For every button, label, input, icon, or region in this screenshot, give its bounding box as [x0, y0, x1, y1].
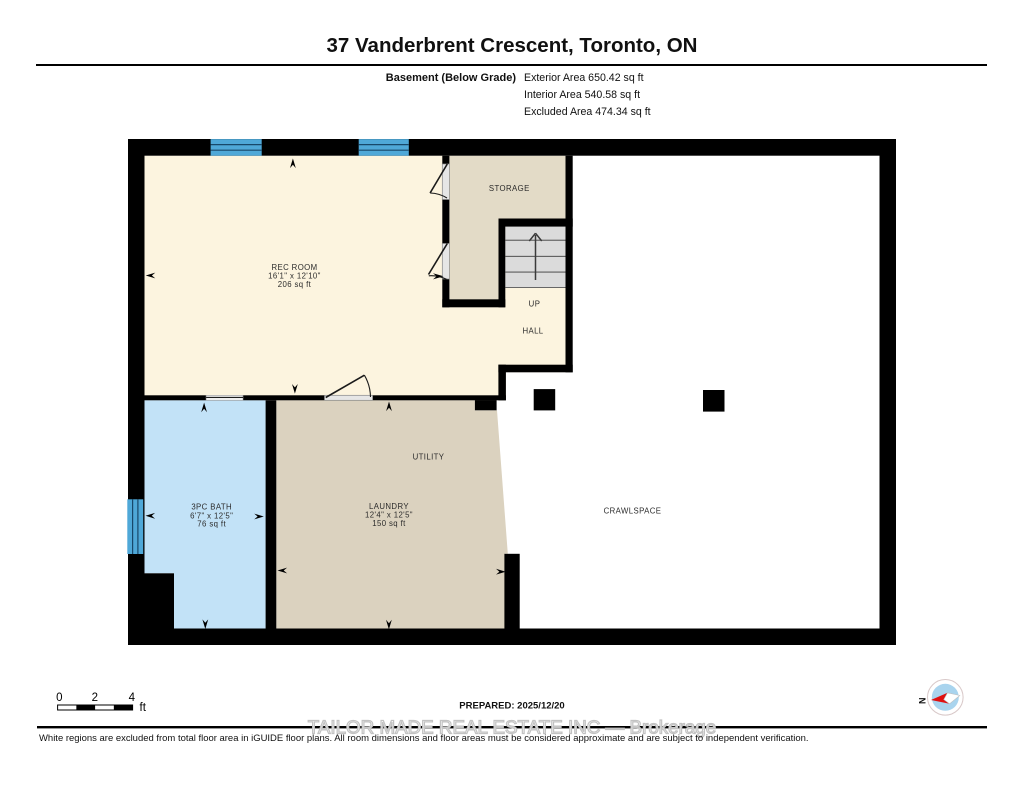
- svg-text:PREPARED: 2025/12/20: PREPARED: 2025/12/20: [459, 701, 564, 712]
- svg-text:UP: UP: [529, 300, 541, 309]
- svg-text:0: 0: [56, 692, 62, 704]
- svg-text:ft: ft: [140, 702, 147, 714]
- svg-text:4: 4: [129, 692, 136, 704]
- svg-text:CRAWLSPACE: CRAWLSPACE: [604, 506, 662, 515]
- svg-text:150 sq ft: 150 sq ft: [372, 519, 406, 528]
- svg-text:STORAGE: STORAGE: [489, 184, 530, 193]
- svg-text:76 sq ft: 76 sq ft: [197, 520, 226, 529]
- svg-text:206 sq ft: 206 sq ft: [278, 280, 312, 289]
- svg-text:2: 2: [92, 692, 98, 704]
- svg-text:UTILITY: UTILITY: [413, 452, 445, 461]
- svg-text:HALL: HALL: [522, 327, 543, 336]
- svg-text:N: N: [918, 698, 928, 705]
- svg-text:3PC BATH: 3PC BATH: [191, 503, 232, 512]
